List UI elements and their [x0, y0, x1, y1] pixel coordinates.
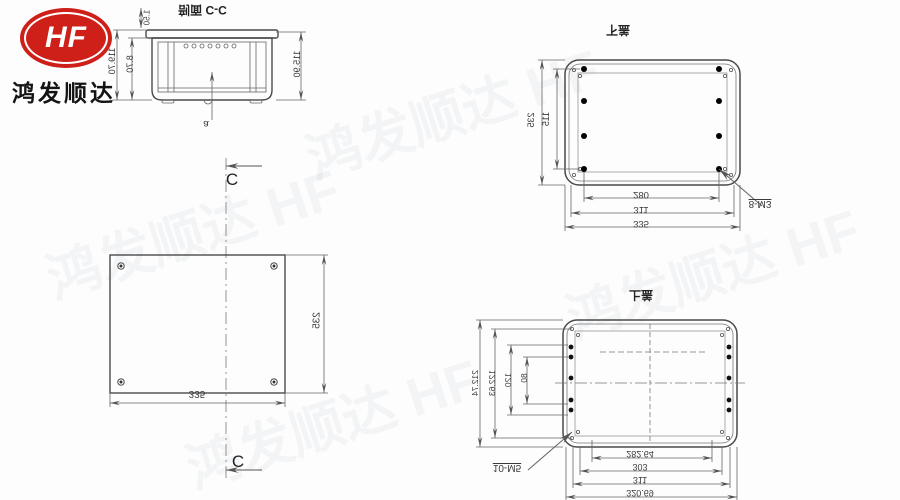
plan-view-drawing: [100, 150, 340, 490]
dim-height-115-90: 115.90: [292, 40, 302, 88]
logo-oval: HF: [20, 8, 112, 68]
top-cover-dimension-lines: [476, 320, 737, 500]
top-cover-title: 上盖: [616, 287, 666, 304]
dim-top-120: 120: [503, 356, 513, 404]
hole-label-10-m5: 10-M5: [484, 462, 530, 473]
bottom-cover-face: [578, 73, 727, 172]
m5-boss-holes: [569, 345, 732, 413]
m3-boss-holes: [581, 66, 722, 172]
hidden-centerlines: [555, 324, 745, 443]
section-marker-c-top: C: [222, 170, 242, 190]
dim-top-320-69: 320.69: [610, 488, 670, 498]
dim-height-8-70: 8.70: [125, 40, 135, 88]
dim-screw-width-311: 311: [611, 204, 671, 215]
bottom-cover-drawing: [520, 20, 800, 250]
plan-dimension-lines: [110, 255, 328, 407]
dim-top-282-64: 282.64: [610, 449, 670, 459]
lid-corner-screws: [118, 263, 277, 385]
dim-top-303: 303: [610, 462, 670, 472]
dim-top-212-74: 212.74: [470, 359, 480, 407]
drawing-sheet: 鸿发顺达 HF 鸿发顺达 HF 鸿发顺达 HF 鸿发顺达 HF HF 鸿发顺达: [0, 0, 900, 500]
dim-plan-width-335: 335: [167, 388, 227, 399]
section-marker-c-bottom: C: [228, 452, 248, 472]
bottom-cover-outline: [565, 60, 740, 185]
dim-plan-height-235: 235: [312, 297, 323, 345]
dim-bottom-boss-115: 115: [541, 95, 551, 143]
dim-top-122-63: 122.63: [487, 359, 497, 407]
dim-top-80: 80: [519, 354, 529, 402]
logo-monogram: HF: [45, 21, 87, 55]
hole-label-8-m3: 8-M3: [738, 198, 782, 209]
bottom-cover-title: 下盖: [593, 22, 643, 39]
lid-plan-outline: [110, 255, 285, 393]
leader-label-a: a: [198, 118, 214, 129]
dim-top-311: 311: [610, 475, 670, 485]
dim-bottom-outer-235: 235: [526, 96, 536, 144]
bottom-cover-inner-edge: [569, 64, 736, 181]
dim-lip-1-50: 1.50: [143, 0, 152, 42]
corner-lug-holes: [572, 68, 732, 176]
dim-outer-width-335: 335: [611, 218, 671, 229]
dim-height-119-70: 119.70: [107, 37, 117, 85]
section-view-title: 剖面 C-C: [155, 2, 250, 19]
dim-boss-width-280: 280: [611, 189, 671, 200]
